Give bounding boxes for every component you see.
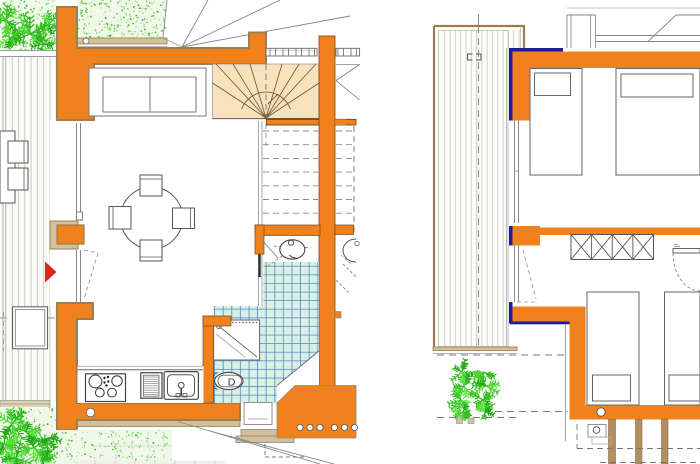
svg-text:D: D: [228, 376, 236, 388]
